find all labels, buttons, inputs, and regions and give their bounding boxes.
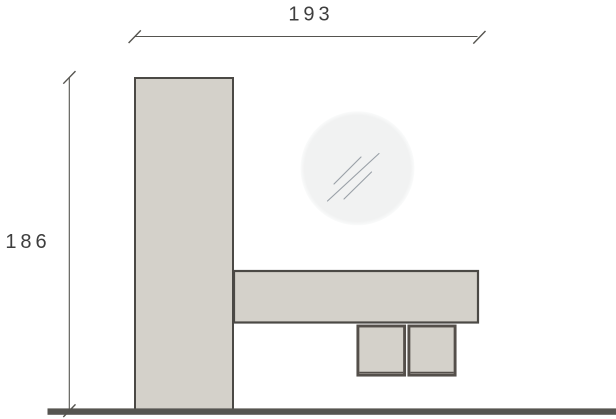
- svg-text:193: 193: [288, 4, 333, 26]
- svg-text:186: 186: [5, 231, 50, 253]
